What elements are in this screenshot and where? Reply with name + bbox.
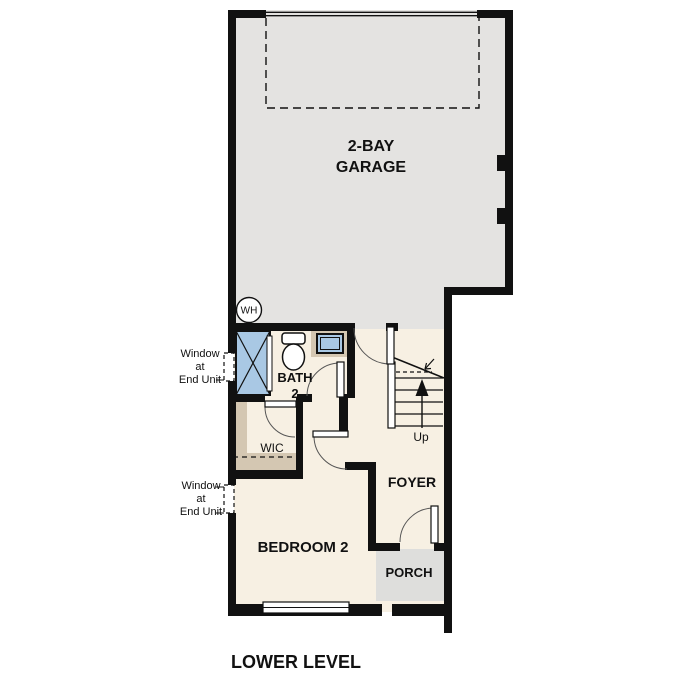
bedroom-window <box>263 602 349 613</box>
water-heater: WH <box>237 298 262 323</box>
garage-floor <box>230 10 511 378</box>
bedroom-label: BEDROOM 2 <box>258 539 349 556</box>
shower-door <box>267 336 272 391</box>
bath-right-wall <box>347 323 355 398</box>
garage-bath-wall <box>228 323 354 331</box>
foyer-bottom-wall-right <box>434 543 444 551</box>
window-note-upper-line1: Window <box>180 348 219 360</box>
vanity <box>311 329 348 357</box>
garage-wall-notch <box>497 155 505 171</box>
right-garage-wall <box>505 10 513 295</box>
porch-step-wall <box>392 604 444 616</box>
foyer-label: FOYER <box>388 474 436 490</box>
left-wall-upper <box>228 10 236 353</box>
stairs-up-label: Up <box>413 430 429 444</box>
foyer-bottom-wall-left <box>368 543 400 551</box>
window-note-lower: Window at End Unit <box>180 480 222 518</box>
left-wall-middle <box>228 381 236 485</box>
right-lower-wall <box>444 287 452 633</box>
porch-label: PORCH <box>386 565 433 580</box>
floorplan-page: WH 2-BAY GARAGE BATH 2 WIC FOYER BEDROOM… <box>0 0 687 687</box>
garage-step-wall <box>444 287 513 295</box>
wic-label: WIC <box>260 441 284 455</box>
garage-label-line1: 2-BAY <box>348 138 395 155</box>
bath-label-line1: BATH <box>277 370 312 385</box>
floorplan-svg: WH 2-BAY GARAGE BATH 2 WIC FOYER BEDROOM… <box>0 0 687 687</box>
hall-bath-wall <box>339 394 348 433</box>
wic-right-wall <box>296 397 303 474</box>
shower <box>236 331 272 395</box>
page-title: LOWER LEVEL <box>231 652 361 672</box>
window-note-upper-line3: End Unit <box>179 374 221 386</box>
stair-rail <box>388 362 395 428</box>
window-note-upper: Window at End Unit <box>179 348 221 386</box>
foyer-left-wall <box>368 462 376 551</box>
water-heater-label: WH <box>241 306 258 317</box>
window-note-lower-line3: End Unit <box>180 506 222 518</box>
garage-wall-notch <box>497 208 505 224</box>
window-note-upper-line2: at <box>195 361 204 373</box>
end-unit-window-upper <box>224 353 234 381</box>
toilet <box>282 333 305 370</box>
left-wall-lower <box>228 513 236 616</box>
end-unit-window-lower <box>224 485 234 513</box>
window-note-lower-line1: Window <box>181 480 220 492</box>
window-note-lower-line2: at <box>196 493 205 505</box>
garage-label-line2: GARAGE <box>336 159 407 176</box>
bath-label-line2: 2 <box>291 386 298 401</box>
wic-bottom-wall <box>228 470 303 479</box>
